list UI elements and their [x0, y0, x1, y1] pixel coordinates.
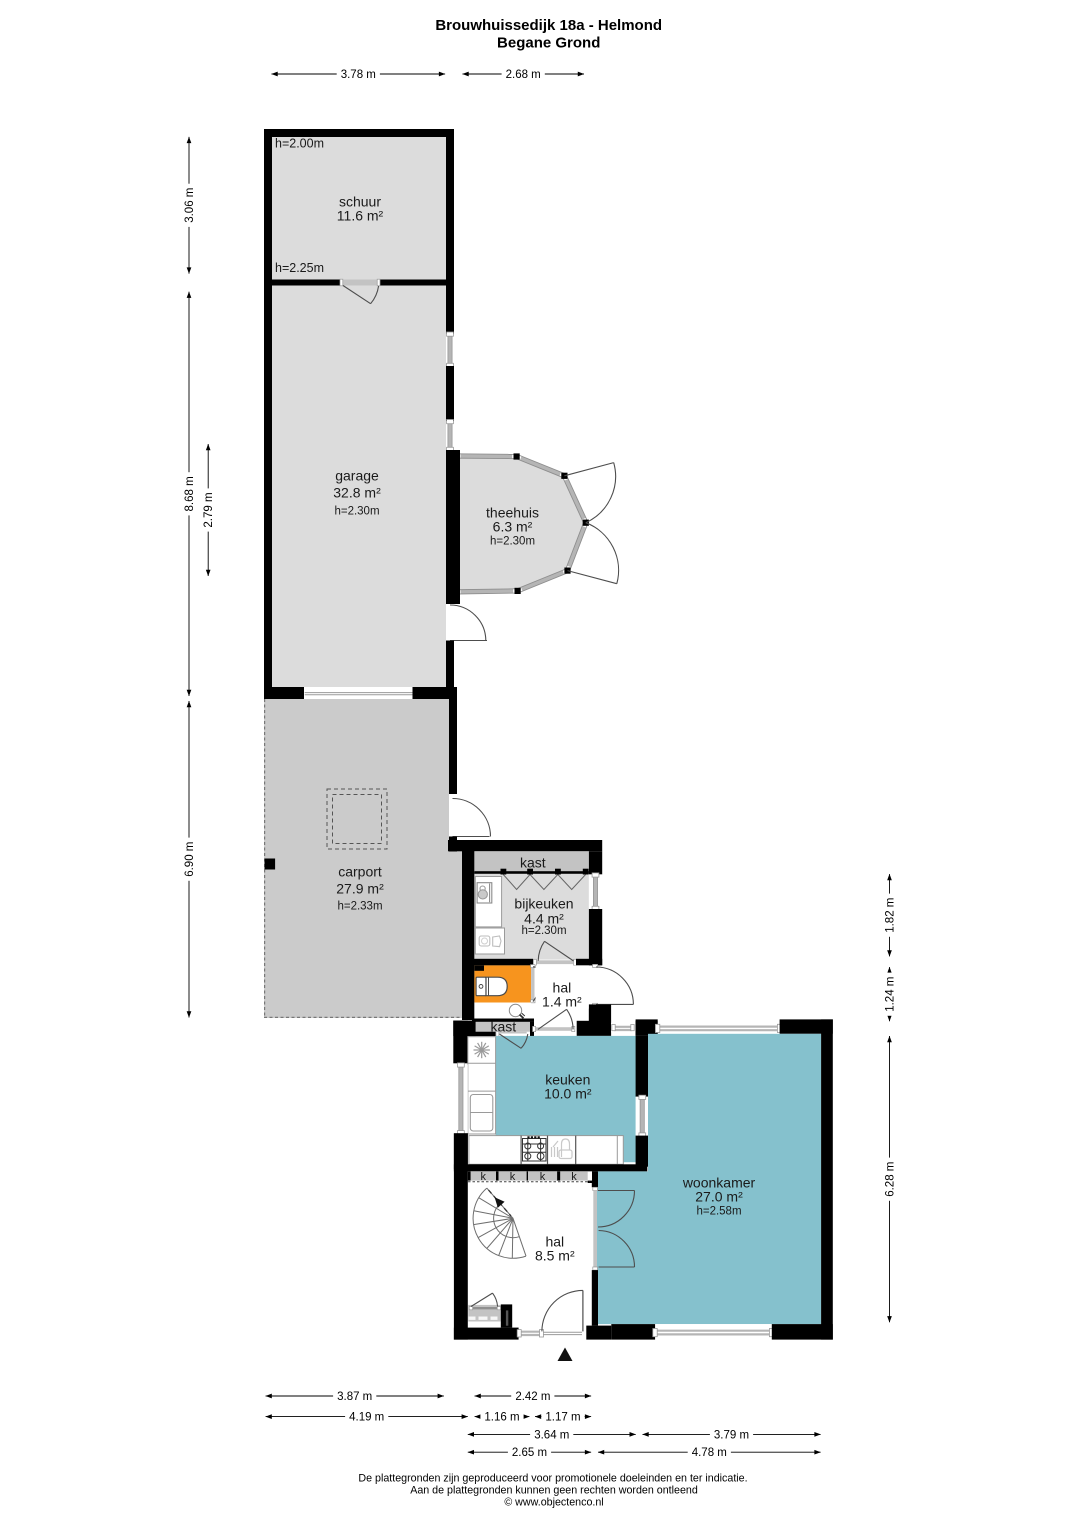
svg-text:3.06 m: 3.06 m [184, 188, 196, 223]
svg-text:bijkeuken: bijkeuken [514, 895, 573, 911]
svg-text:32.8 m²: 32.8 m² [333, 485, 381, 501]
svg-text:6.3 m²: 6.3 m² [493, 519, 533, 535]
svg-text:8.5 m²: 8.5 m² [535, 1247, 575, 1263]
svg-text:garage: garage [335, 468, 379, 484]
svg-text:h=2.33m: h=2.33m [337, 901, 382, 913]
svg-text:1.17 m: 1.17 m [545, 1412, 580, 1424]
svg-text:1.16 m: 1.16 m [484, 1412, 519, 1424]
svg-text:4.78 m: 4.78 m [692, 1447, 727, 1459]
svg-text:2.68 m: 2.68 m [506, 69, 541, 81]
svg-text:1.24 m: 1.24 m [884, 977, 896, 1012]
svg-text:h=2.30m: h=2.30m [521, 925, 566, 937]
svg-text:k: k [510, 1171, 516, 1183]
svg-text:k: k [481, 1171, 487, 1183]
svg-text:3.87 m: 3.87 m [337, 1391, 372, 1403]
svg-text:© www.objectenco.nl: © www.objectenco.nl [504, 1496, 603, 1508]
svg-text:1.4 m²: 1.4 m² [542, 993, 582, 1009]
svg-text:De plattegronden zijn geproduc: De plattegronden zijn geproduceerd voor … [358, 1472, 747, 1484]
svg-text:Begane Grond: Begane Grond [497, 34, 600, 51]
svg-text:Brouwhuissedijk 18a - Helmond: Brouwhuissedijk 18a - Helmond [435, 17, 662, 34]
svg-text:4.19 m: 4.19 m [349, 1412, 384, 1424]
svg-text:27.0 m²: 27.0 m² [695, 1188, 743, 1204]
svg-text:Aan de plattegronden kunnen ge: Aan de plattegronden kunnen geen rechten… [410, 1485, 698, 1497]
svg-text:h=2.30m: h=2.30m [490, 536, 535, 548]
svg-text:11.6 m²: 11.6 m² [337, 208, 384, 224]
svg-text:kast: kast [520, 854, 546, 870]
svg-text:h=2.30m: h=2.30m [334, 506, 379, 518]
svg-text:3.78 m: 3.78 m [341, 69, 376, 81]
svg-text:k: k [540, 1171, 546, 1183]
svg-text:k: k [571, 1171, 577, 1183]
svg-text:3.64 m: 3.64 m [534, 1429, 569, 1441]
svg-text:8.68 m: 8.68 m [184, 476, 196, 511]
svg-text:27.9 m²: 27.9 m² [336, 881, 384, 897]
svg-text:3.79 m: 3.79 m [714, 1429, 749, 1441]
svg-text:4.4 m²: 4.4 m² [524, 910, 564, 926]
svg-text:h=2.00m: h=2.00m [275, 137, 324, 151]
svg-text:h=2.25m: h=2.25m [275, 261, 324, 275]
svg-text:2.65 m: 2.65 m [512, 1447, 547, 1459]
svg-text:carport: carport [338, 864, 382, 880]
svg-text:10.0 m²: 10.0 m² [544, 1085, 592, 1101]
svg-text:2.79 m: 2.79 m [203, 492, 215, 527]
svg-text:1.82 m: 1.82 m [884, 898, 896, 933]
svg-text:6.90 m: 6.90 m [184, 842, 196, 877]
svg-text:6.28 m: 6.28 m [884, 1162, 896, 1197]
svg-text:h=2.58m: h=2.58m [696, 1206, 741, 1218]
svg-text:2.42 m: 2.42 m [515, 1391, 550, 1403]
